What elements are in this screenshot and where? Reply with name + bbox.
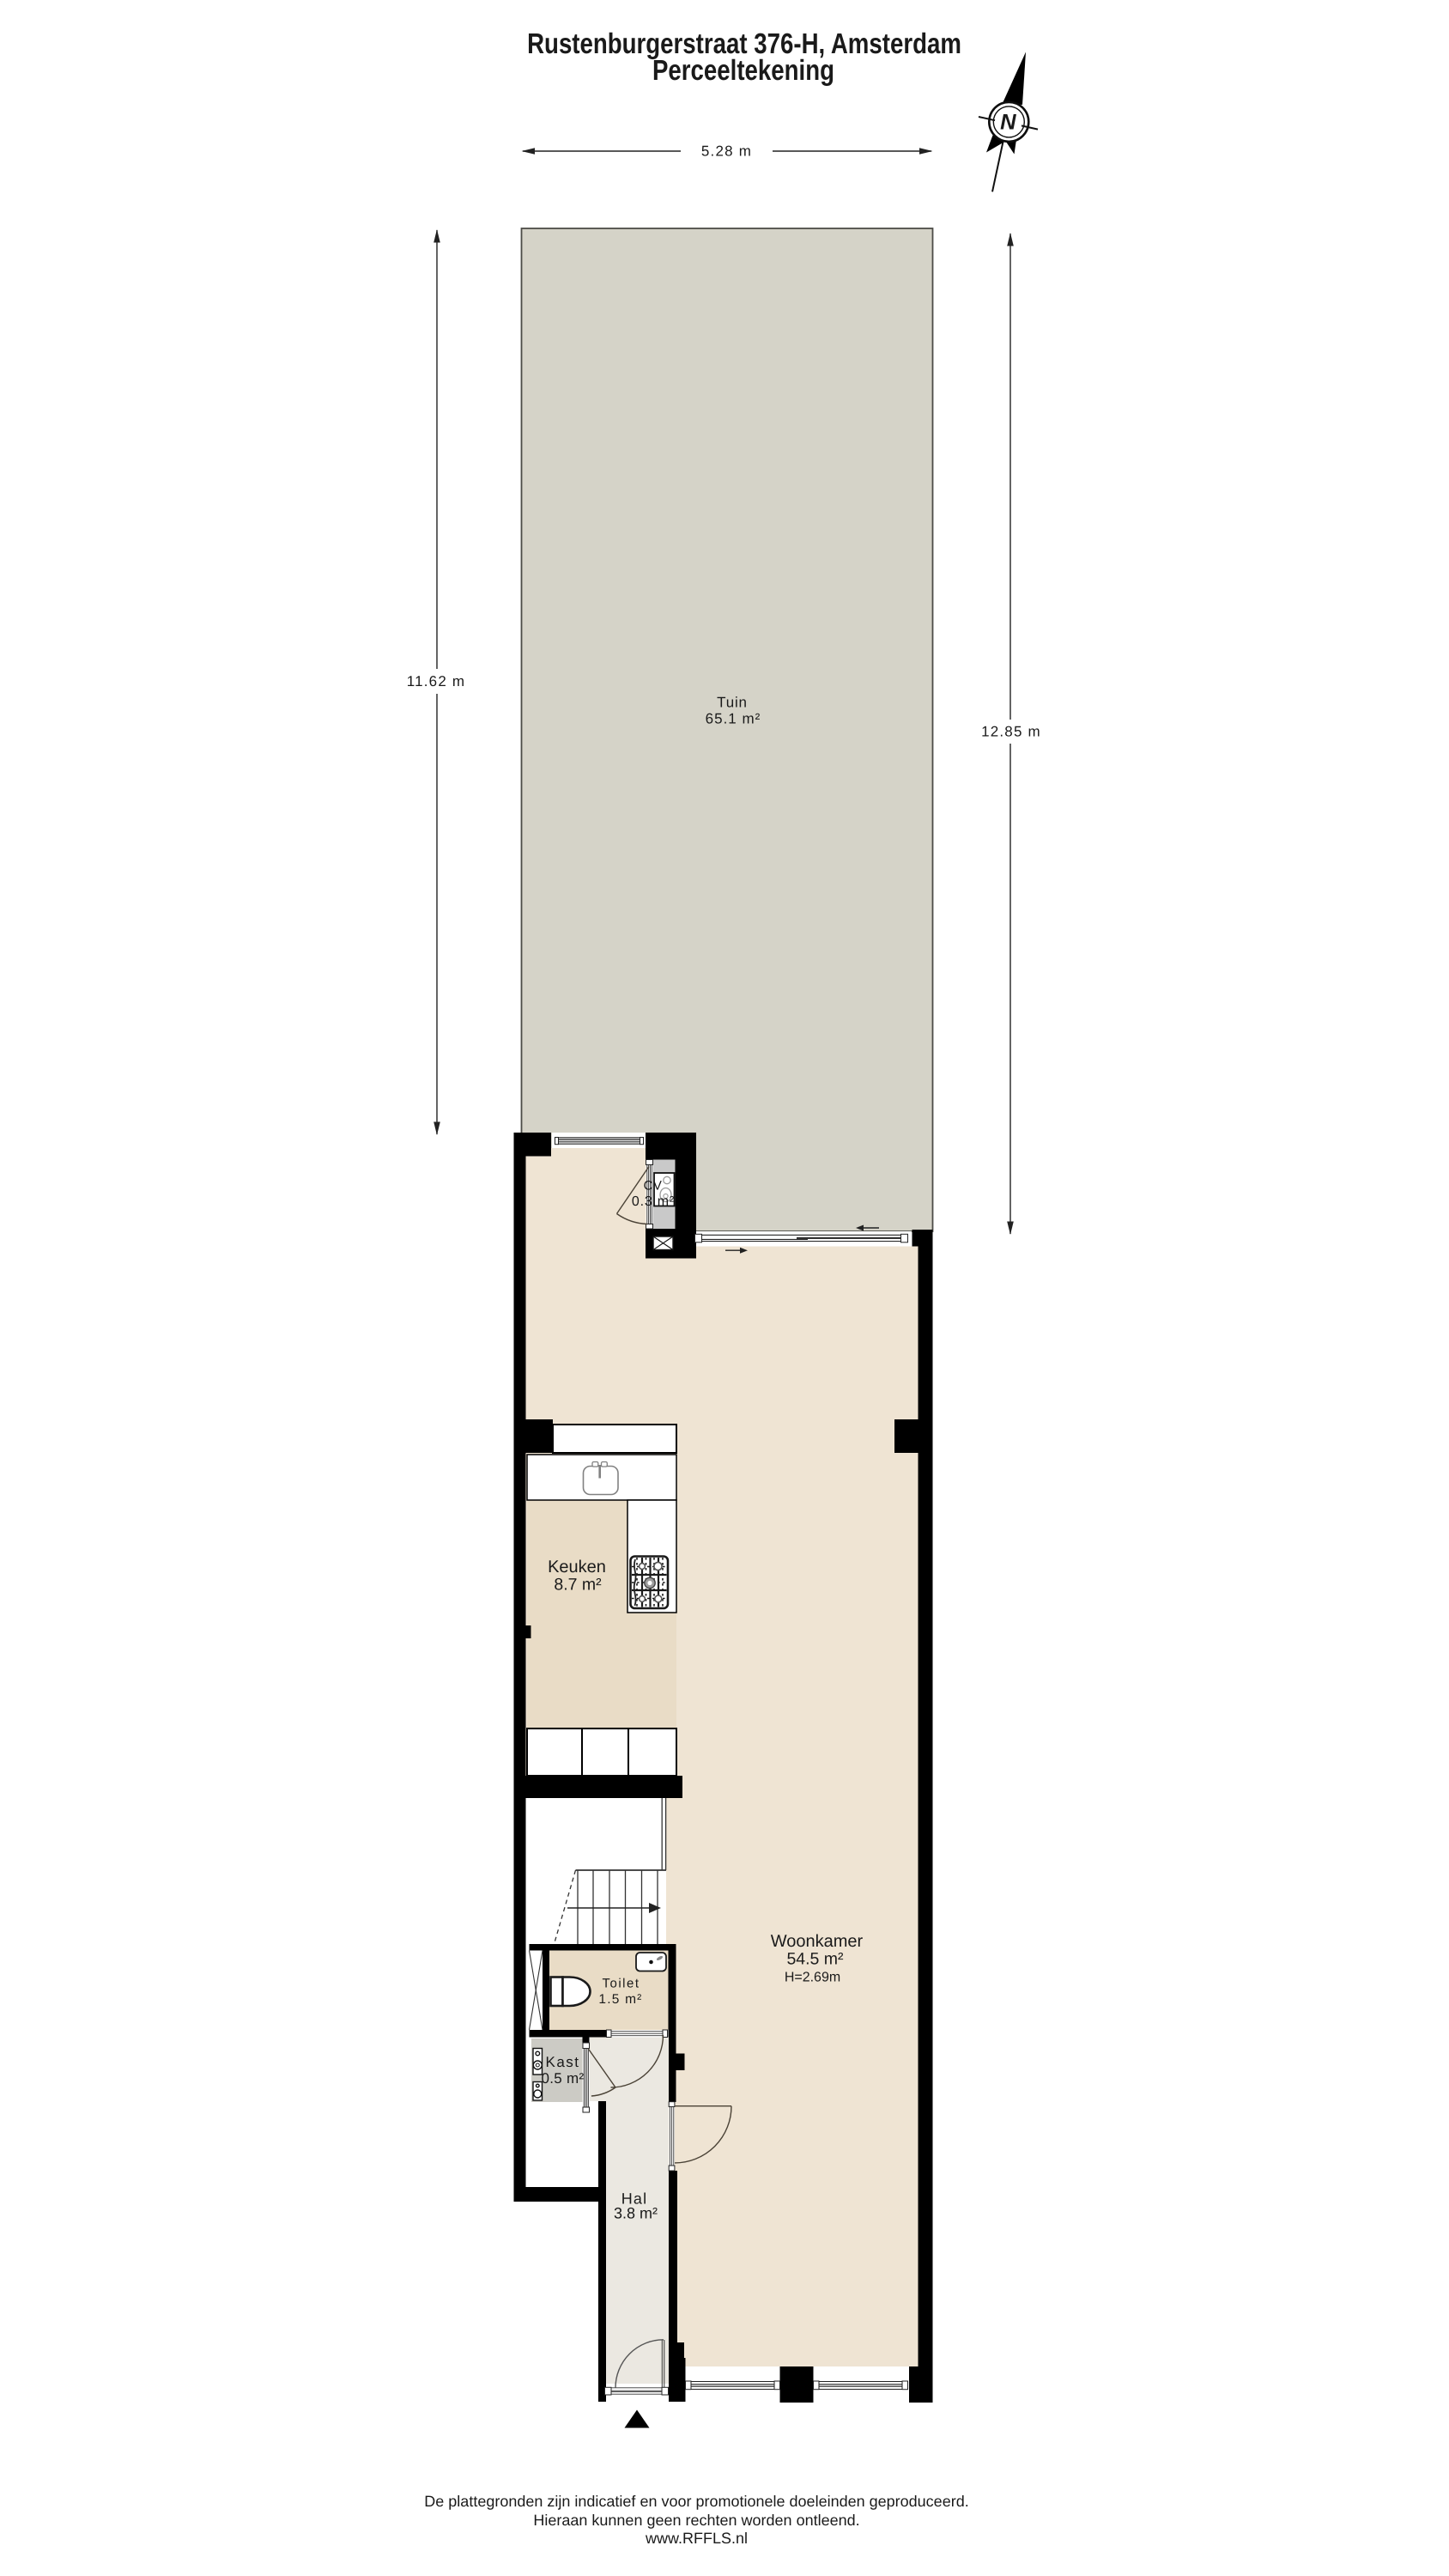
svg-text:5.28 m: 5.28 m	[701, 143, 752, 160]
svg-text:0.5 m²: 0.5 m²	[542, 2070, 585, 2087]
svg-text:1.5 m²: 1.5 m²	[598, 1992, 642, 2007]
svg-text:54.5 m²: 54.5 m²	[786, 1950, 844, 1969]
svg-text:12.85 m: 12.85 m	[981, 724, 1041, 740]
svg-text:www.RFFLS.nl: www.RFFLS.nl	[645, 2530, 748, 2547]
svg-text:Keuken: Keuken	[548, 1558, 606, 1577]
svg-text:De plattegronden zijn indicati: De plattegronden zijn indicatief en voor…	[424, 2493, 968, 2510]
svg-text:H=2.69m: H=2.69m	[785, 1971, 840, 1985]
svg-text:0.3 m²: 0.3 m²	[632, 1194, 675, 1209]
svg-text:Kast: Kast	[545, 2054, 579, 2070]
svg-text:N: N	[1000, 111, 1016, 135]
svg-text:Woonkamer: Woonkamer	[771, 1932, 864, 1951]
svg-text:Hieraan kunnen geen rechten wo: Hieraan kunnen geen rechten worden ontle…	[533, 2512, 859, 2529]
svg-text:Perceeltekening: Perceeltekening	[652, 55, 834, 87]
svg-text:Toilet: Toilet	[602, 1977, 640, 1991]
svg-text:11.62 m: 11.62 m	[407, 673, 466, 690]
svg-text:CV: CV	[644, 1179, 663, 1194]
svg-text:8.7 m²: 8.7 m²	[554, 1576, 602, 1595]
svg-text:3.8 m²: 3.8 m²	[614, 2205, 658, 2222]
svg-text:Tuin: Tuin	[717, 695, 748, 711]
svg-text:65.1 m²: 65.1 m²	[706, 711, 761, 727]
